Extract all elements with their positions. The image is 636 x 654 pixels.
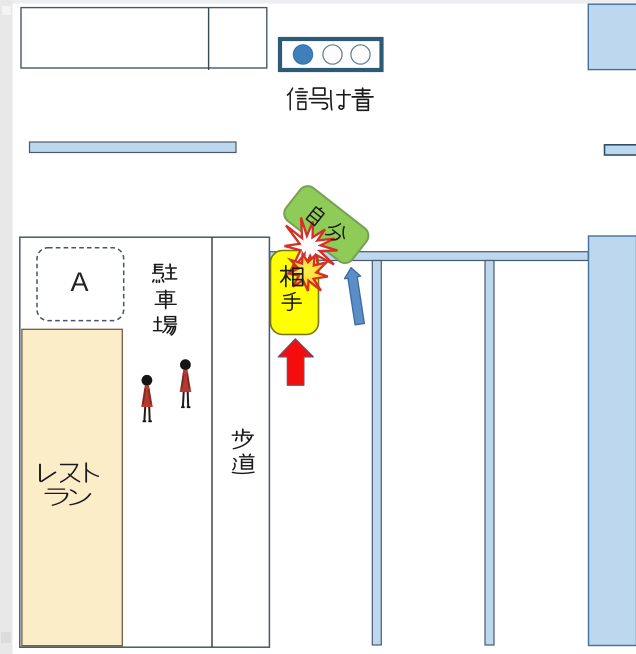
svg-text:A: A	[70, 267, 88, 297]
